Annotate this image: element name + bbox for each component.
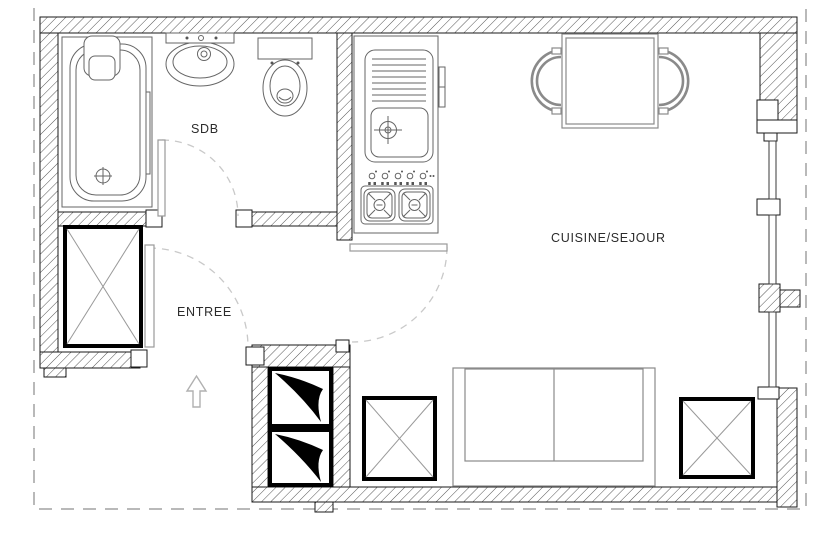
window-head-block — [757, 100, 778, 120]
chair-back-inner — [659, 57, 683, 105]
jamb-duct-wall-top — [336, 340, 349, 352]
jamb-entrance-door — [131, 350, 147, 367]
basin-dot-right — [215, 37, 218, 40]
gas-hob — [361, 171, 435, 225]
chair-tab — [659, 108, 668, 114]
knob-mark — [430, 175, 432, 177]
wardrobe-right — [681, 399, 753, 477]
wall-jambs — [131, 100, 797, 399]
wall-sdb-south-left — [58, 212, 148, 226]
room-label-kitchen-living: CUISINE/SEJOUR — [551, 231, 666, 245]
washbasin — [166, 33, 234, 86]
wall-pier-bottom-right — [777, 388, 797, 507]
window-joint-lower — [758, 387, 779, 399]
living-door-swing — [352, 247, 447, 342]
wall-top — [40, 17, 797, 33]
wall-sdb-south-right — [252, 212, 337, 226]
chair-tab — [659, 48, 668, 54]
duct-box — [270, 369, 331, 426]
window-notch — [764, 133, 777, 141]
wall-duct-right — [333, 367, 350, 487]
window-pane-2 — [769, 215, 776, 284]
wall-left — [40, 33, 58, 352]
entrance-arrow — [187, 376, 206, 407]
dining-table — [562, 34, 658, 128]
jamb-duct-wall-left — [246, 347, 264, 365]
entrance-door-leaf — [145, 245, 154, 347]
wall-duct-left — [252, 367, 268, 487]
wall-pier-mid-tab — [780, 290, 800, 307]
kitchen-unit — [354, 36, 445, 233]
ventilation-duct-upper — [270, 369, 331, 426]
window-pane-1 — [769, 141, 776, 199]
entrance-door-swing — [149, 248, 248, 347]
jamb-sdb-door-right — [236, 210, 252, 227]
wardrobe-left — [65, 227, 141, 346]
wall-bottom-stub — [315, 502, 333, 512]
knob-mark — [433, 175, 435, 177]
floor-plan-drawing: SDB ENTREE CUISINE/SEJOUR — [0, 0, 820, 540]
wall-duct-top — [252, 345, 350, 367]
sofa-bed — [453, 368, 655, 486]
toilet-tank — [258, 38, 312, 59]
basin-backsplash — [166, 33, 234, 43]
chair-tab — [552, 48, 561, 54]
wall-kitchen-west — [337, 33, 352, 240]
toilet-bolt-right — [297, 62, 300, 65]
bathtub-mixer — [89, 56, 115, 80]
bathtub — [62, 36, 152, 207]
wall-under-closet — [40, 352, 140, 368]
room-label-entrance: ENTREE — [177, 305, 232, 319]
sdb-door-swing — [162, 140, 238, 216]
wall-pier-mid — [759, 284, 780, 312]
sdb-door-leaf — [158, 140, 165, 216]
kitchen-sink-top — [365, 50, 433, 162]
wall-left-step — [44, 368, 66, 377]
table-outer — [562, 34, 658, 128]
toilet — [258, 38, 312, 116]
window-pane-3 — [769, 312, 776, 387]
room-label-bathroom: SDB — [191, 122, 219, 136]
window-joint-upper — [757, 199, 780, 215]
wall-bottom — [252, 487, 797, 502]
basin-dot-left — [186, 37, 189, 40]
chair-tab — [552, 108, 561, 114]
living-door-leaf — [350, 244, 447, 251]
toilet-bolt-left — [271, 62, 274, 65]
dining-chair-left — [532, 48, 561, 114]
ventilation-duct-lower — [270, 430, 331, 485]
window-sill — [757, 120, 797, 133]
chair-back-inner — [537, 57, 561, 105]
wardrobe-middle — [364, 398, 435, 479]
window-wall — [769, 141, 776, 387]
floor-plan: SDB ENTREE CUISINE/SEJOUR — [0, 0, 820, 540]
dining-chair-right — [659, 48, 688, 114]
